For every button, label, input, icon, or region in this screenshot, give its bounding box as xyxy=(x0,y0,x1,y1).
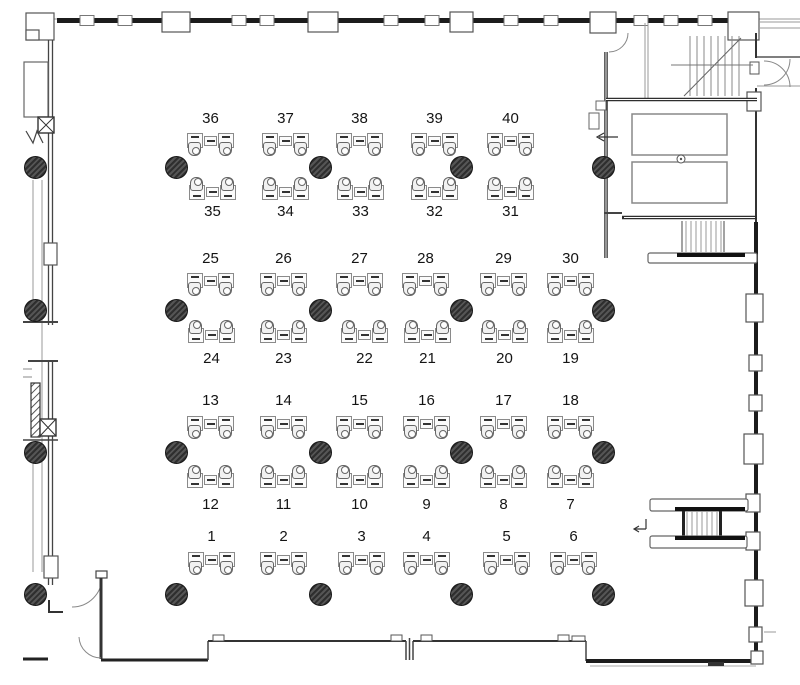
desk-divider xyxy=(420,419,433,429)
monitor-icon xyxy=(342,555,350,557)
chair-icon xyxy=(548,282,561,296)
chair-seat xyxy=(192,287,200,295)
chair-seat xyxy=(224,322,232,330)
chair-seat xyxy=(407,287,415,295)
chair-seat xyxy=(265,467,273,475)
desk-number-1: 1 xyxy=(188,528,235,546)
desk-number-27: 27 xyxy=(336,250,383,268)
desk-number-13: 13 xyxy=(187,392,234,410)
chair-seat xyxy=(438,287,446,295)
chair-seat xyxy=(583,322,591,330)
chair-seat xyxy=(265,322,273,330)
monitor-icon xyxy=(582,276,590,278)
chair-icon xyxy=(488,142,501,156)
monitor-icon xyxy=(407,555,415,557)
monitor-icon xyxy=(191,136,199,138)
chair-seat xyxy=(373,179,381,187)
desk-pod-39[interactable] xyxy=(411,133,458,157)
chair-seat xyxy=(298,179,306,187)
chair-seat xyxy=(492,147,500,155)
monitor-icon xyxy=(437,276,445,278)
chair-seat xyxy=(552,430,560,438)
monitor-icon xyxy=(340,419,348,421)
desk-divider xyxy=(497,276,510,286)
desk-divider xyxy=(564,330,577,340)
chair-seat xyxy=(485,287,493,295)
desk-pod-31[interactable] xyxy=(487,176,534,200)
desk-pod-21[interactable] xyxy=(404,319,451,343)
desk-number-21: 21 xyxy=(404,350,451,368)
chair-icon xyxy=(548,425,561,439)
chair-icon xyxy=(292,561,305,575)
chair-icon xyxy=(292,425,305,439)
chair-icon xyxy=(443,142,456,156)
chair-seat xyxy=(296,467,304,475)
monitor-icon xyxy=(372,195,380,197)
monitor-icon xyxy=(446,136,454,138)
monitor-icon xyxy=(554,555,562,557)
desk-divider xyxy=(420,555,433,565)
monitor-icon xyxy=(431,191,439,193)
chair-icon xyxy=(512,425,525,439)
chair-seat xyxy=(193,566,201,574)
desk-pod-25[interactable] xyxy=(187,273,234,297)
monitor-icon xyxy=(522,136,530,138)
desk-divider xyxy=(205,330,218,340)
chair-icon xyxy=(368,142,381,156)
monitor-icon xyxy=(295,276,303,278)
chair-icon xyxy=(337,465,350,479)
monitor-icon xyxy=(295,555,303,557)
desk-divider xyxy=(504,187,517,197)
monitor-icon xyxy=(357,191,365,193)
chair-icon xyxy=(548,465,561,479)
desk-number-28: 28 xyxy=(402,250,449,268)
monitor-icon xyxy=(207,479,215,481)
chair-icon xyxy=(481,282,494,296)
chair-seat xyxy=(416,147,424,155)
desk-divider xyxy=(204,136,217,146)
monitor-icon xyxy=(280,280,288,282)
desk-pod-12[interactable] xyxy=(187,464,234,488)
chair-seat xyxy=(267,147,275,155)
desk-divider xyxy=(205,555,218,565)
chair-icon xyxy=(338,177,351,191)
desk-divider xyxy=(567,555,580,565)
chair-seat xyxy=(439,566,447,574)
desk-number-11: 11 xyxy=(260,496,307,514)
monitor-icon xyxy=(551,338,559,340)
chair-icon xyxy=(512,465,525,479)
desk-divider xyxy=(355,555,368,565)
desk-pod-14[interactable] xyxy=(260,416,307,440)
monitor-icon xyxy=(415,195,423,197)
chair-icon xyxy=(403,282,416,296)
desk-divider xyxy=(277,330,290,340)
desk-pod-33[interactable] xyxy=(337,176,384,200)
desk-number-12: 12 xyxy=(187,496,234,514)
chair-icon xyxy=(404,465,417,479)
chair-seat xyxy=(486,322,494,330)
monitor-icon xyxy=(358,559,366,561)
desk-number-31: 31 xyxy=(487,203,534,221)
monitor-icon xyxy=(280,334,288,336)
desk-number-34: 34 xyxy=(262,203,309,221)
desk-pod-37[interactable] xyxy=(262,133,309,157)
chair-icon xyxy=(368,465,381,479)
desk-pod-17[interactable] xyxy=(480,416,527,440)
monitor-icon xyxy=(485,338,493,340)
monitor-icon xyxy=(282,191,290,193)
desk-pod-18[interactable] xyxy=(547,416,594,440)
desk-pod-10[interactable] xyxy=(336,464,383,488)
monitor-icon xyxy=(264,338,272,340)
chair-seat xyxy=(296,566,304,574)
desk-divider xyxy=(204,276,217,286)
desk-number-7: 7 xyxy=(547,496,594,514)
chair-seat xyxy=(192,430,200,438)
monitor-icon xyxy=(295,483,303,485)
chair-icon xyxy=(582,561,595,575)
chair-icon xyxy=(373,320,386,334)
monitor-icon xyxy=(515,276,523,278)
chair-seat xyxy=(372,430,380,438)
monitor-icon xyxy=(356,280,364,282)
desk-pod-30[interactable] xyxy=(547,273,594,297)
monitor-icon xyxy=(371,136,379,138)
monitor-icon xyxy=(500,280,508,282)
chair-seat xyxy=(267,179,275,187)
monitor-icon xyxy=(222,483,230,485)
desk-pod-34[interactable] xyxy=(262,176,309,200)
chair-seat xyxy=(555,566,563,574)
chair-icon xyxy=(263,177,276,191)
chair-seat xyxy=(523,147,531,155)
chair-seat xyxy=(516,430,524,438)
monitor-icon xyxy=(264,276,272,278)
desk-divider xyxy=(419,276,432,286)
desk-pod-19[interactable] xyxy=(547,319,594,343)
monitor-icon xyxy=(192,338,200,340)
desk-pod-3[interactable] xyxy=(338,552,385,576)
desk-number-17: 17 xyxy=(480,392,527,410)
desk-pod-32[interactable] xyxy=(411,176,458,200)
chair-seat xyxy=(517,322,525,330)
monitor-icon xyxy=(371,483,379,485)
monitor-icon xyxy=(567,334,575,336)
monitor-icon xyxy=(439,338,447,340)
desk-pod-36[interactable] xyxy=(187,133,234,157)
desk-pod-20[interactable] xyxy=(481,319,528,343)
chair-icon xyxy=(435,425,448,439)
desk-pod-2[interactable] xyxy=(260,552,307,576)
desk-pod-22[interactable] xyxy=(341,319,388,343)
monitor-icon xyxy=(208,559,216,561)
chair-seat xyxy=(516,287,524,295)
chair-seat xyxy=(223,147,231,155)
chair-seat xyxy=(296,287,304,295)
desk-pod-15[interactable] xyxy=(336,416,383,440)
chair-seat xyxy=(552,287,560,295)
desk-number-8: 8 xyxy=(480,496,527,514)
chair-icon xyxy=(515,561,528,575)
monitor-icon xyxy=(500,479,508,481)
chair-icon xyxy=(189,320,202,334)
monitor-icon xyxy=(371,419,379,421)
monitor-icon xyxy=(491,136,499,138)
desk-pod-38[interactable] xyxy=(336,133,383,157)
monitor-icon xyxy=(356,423,364,425)
chair-seat xyxy=(519,566,527,574)
monitor-icon xyxy=(500,423,508,425)
chair-seat xyxy=(552,322,560,330)
chair-icon xyxy=(190,177,203,191)
chair-seat xyxy=(440,322,448,330)
monitor-icon xyxy=(446,195,454,197)
chair-icon xyxy=(219,465,232,479)
monitor-icon xyxy=(341,195,349,197)
chair-icon xyxy=(481,465,494,479)
chair-seat xyxy=(224,566,232,574)
monitor-icon xyxy=(340,136,348,138)
chair-icon xyxy=(404,425,417,439)
desk-number-33: 33 xyxy=(337,203,384,221)
chair-seat xyxy=(408,566,416,574)
desk-pod-5[interactable] xyxy=(483,552,530,576)
chair-icon xyxy=(579,282,592,296)
desk-divider xyxy=(353,419,366,429)
desk-pod-4[interactable] xyxy=(403,552,450,576)
desk-number-37: 37 xyxy=(262,110,309,128)
chair-icon xyxy=(405,320,418,334)
monitor-icon xyxy=(297,195,305,197)
monitor-icon xyxy=(582,419,590,421)
desk-pod-13[interactable] xyxy=(187,416,234,440)
desk-pod-26[interactable] xyxy=(260,273,307,297)
monitor-icon xyxy=(264,419,272,421)
desk-divider xyxy=(206,187,219,197)
chair-seat xyxy=(408,467,416,475)
monitor-icon xyxy=(295,419,303,421)
desk-number-4: 4 xyxy=(403,528,450,546)
chair-icon xyxy=(188,425,201,439)
chair-seat xyxy=(492,179,500,187)
monitor-icon xyxy=(207,423,215,425)
desk-pod-35[interactable] xyxy=(189,176,236,200)
desk-pod-6[interactable] xyxy=(550,552,597,576)
monitor-icon xyxy=(487,555,495,557)
chair-icon xyxy=(369,177,382,191)
desk-divider xyxy=(498,330,511,340)
chair-icon xyxy=(221,177,234,191)
chair-icon xyxy=(261,320,274,334)
desks-layer: 3637383940353433323125262728293024232221… xyxy=(0,0,800,685)
chair-icon xyxy=(579,320,592,334)
desk-number-30: 30 xyxy=(547,250,594,268)
chair-icon xyxy=(435,561,448,575)
chair-seat xyxy=(296,430,304,438)
chair-icon xyxy=(189,561,202,575)
chair-icon xyxy=(484,561,497,575)
desk-number-20: 20 xyxy=(481,350,528,368)
chair-icon xyxy=(263,142,276,156)
monitor-icon xyxy=(438,483,446,485)
chair-icon xyxy=(513,320,526,334)
desk-divider xyxy=(277,555,290,565)
monitor-icon xyxy=(222,276,230,278)
monitor-icon xyxy=(224,195,232,197)
monitor-icon xyxy=(266,195,274,197)
desk-divider xyxy=(497,419,510,429)
desk-divider xyxy=(428,136,441,146)
monitor-icon xyxy=(223,555,231,557)
chair-seat xyxy=(447,147,455,155)
desk-divider xyxy=(564,276,577,286)
desk-number-5: 5 xyxy=(483,528,530,546)
desk-pod-1[interactable] xyxy=(188,552,235,576)
monitor-icon xyxy=(438,419,446,421)
chair-icon xyxy=(339,561,352,575)
chair-seat xyxy=(346,322,354,330)
monitor-icon xyxy=(518,555,526,557)
chair-seat xyxy=(372,147,380,155)
monitor-icon xyxy=(407,483,415,485)
chair-icon xyxy=(482,320,495,334)
desk-pod-27[interactable] xyxy=(336,273,383,297)
desk-number-39: 39 xyxy=(411,110,458,128)
desk-pod-7[interactable] xyxy=(547,464,594,488)
chair-seat xyxy=(583,467,591,475)
desk-number-23: 23 xyxy=(260,350,307,368)
chair-seat xyxy=(416,179,424,187)
monitor-icon xyxy=(222,419,230,421)
monitor-icon xyxy=(507,140,515,142)
monitor-icon xyxy=(264,555,272,557)
chair-icon xyxy=(294,177,307,191)
desk-number-36: 36 xyxy=(187,110,234,128)
chair-seat xyxy=(192,467,200,475)
monitor-icon xyxy=(567,280,575,282)
chair-seat xyxy=(374,566,382,574)
desk-divider xyxy=(497,475,510,485)
chair-icon xyxy=(261,282,274,296)
desk-number-19: 19 xyxy=(547,350,594,368)
desk-pod-28[interactable] xyxy=(402,273,449,297)
chair-icon xyxy=(412,142,425,156)
monitor-icon xyxy=(522,195,530,197)
chair-seat xyxy=(341,147,349,155)
chair-icon xyxy=(219,425,232,439)
monitor-icon xyxy=(207,280,215,282)
monitor-icon xyxy=(191,419,199,421)
chair-icon xyxy=(337,282,350,296)
chair-icon xyxy=(512,282,525,296)
chair-seat xyxy=(377,322,385,330)
monitor-icon xyxy=(567,423,575,425)
desk-pod-8[interactable] xyxy=(480,464,527,488)
desk-number-16: 16 xyxy=(403,392,450,410)
chair-icon xyxy=(261,465,274,479)
chair-seat xyxy=(516,467,524,475)
desk-divider xyxy=(504,136,517,146)
desk-divider xyxy=(277,475,290,485)
chair-icon xyxy=(579,465,592,479)
chair-icon xyxy=(368,282,381,296)
chair-seat xyxy=(342,179,350,187)
monitor-icon xyxy=(515,483,523,485)
desk-pod-9[interactable] xyxy=(403,464,450,488)
desk-pod-11[interactable] xyxy=(260,464,307,488)
desk-divider xyxy=(277,419,290,429)
monitor-icon xyxy=(503,559,511,561)
desk-pod-16[interactable] xyxy=(403,416,450,440)
chair-icon xyxy=(220,320,233,334)
desk-pod-23[interactable] xyxy=(260,319,307,343)
monitor-icon xyxy=(422,280,430,282)
desk-divider xyxy=(279,187,292,197)
chair-icon xyxy=(488,177,501,191)
floor-plan: 3637383940353433323125262728293024232221… xyxy=(0,0,800,685)
desk-pod-29[interactable] xyxy=(480,273,527,297)
chair-seat xyxy=(341,287,349,295)
monitor-icon xyxy=(515,419,523,421)
monitor-icon xyxy=(423,423,431,425)
desk-divider xyxy=(428,187,441,197)
monitor-icon xyxy=(280,479,288,481)
monitor-icon xyxy=(424,334,432,336)
chair-seat xyxy=(193,322,201,330)
chair-icon xyxy=(219,282,232,296)
chair-icon xyxy=(188,142,201,156)
desk-divider xyxy=(353,276,366,286)
desk-divider xyxy=(279,136,292,146)
desk-number-6: 6 xyxy=(550,528,597,546)
desk-divider xyxy=(564,475,577,485)
desk-divider xyxy=(277,276,290,286)
chair-seat xyxy=(408,430,416,438)
monitor-icon xyxy=(193,195,201,197)
chair-icon xyxy=(481,425,494,439)
monitor-icon xyxy=(376,338,384,340)
chair-icon xyxy=(436,320,449,334)
chair-icon xyxy=(292,320,305,334)
chair-seat xyxy=(265,566,273,574)
monitor-icon xyxy=(507,191,515,193)
monitor-icon xyxy=(373,555,381,557)
chair-icon xyxy=(370,561,383,575)
desk-pod-40[interactable] xyxy=(487,133,534,157)
monitor-icon xyxy=(282,140,290,142)
desk-number-14: 14 xyxy=(260,392,307,410)
chair-icon xyxy=(188,465,201,479)
desk-divider xyxy=(421,330,434,340)
chair-seat xyxy=(298,147,306,155)
monitor-icon xyxy=(408,338,416,340)
desk-pod-24[interactable] xyxy=(188,319,235,343)
chair-icon xyxy=(443,177,456,191)
desk-number-24: 24 xyxy=(188,350,235,368)
monitor-icon xyxy=(356,479,364,481)
monitor-icon xyxy=(484,419,492,421)
monitor-icon xyxy=(484,276,492,278)
monitor-icon xyxy=(264,483,272,485)
monitor-icon xyxy=(582,338,590,340)
chair-icon xyxy=(294,142,307,156)
chair-seat xyxy=(343,566,351,574)
chair-icon xyxy=(412,177,425,191)
monitor-icon xyxy=(516,338,524,340)
monitor-icon xyxy=(295,338,303,340)
